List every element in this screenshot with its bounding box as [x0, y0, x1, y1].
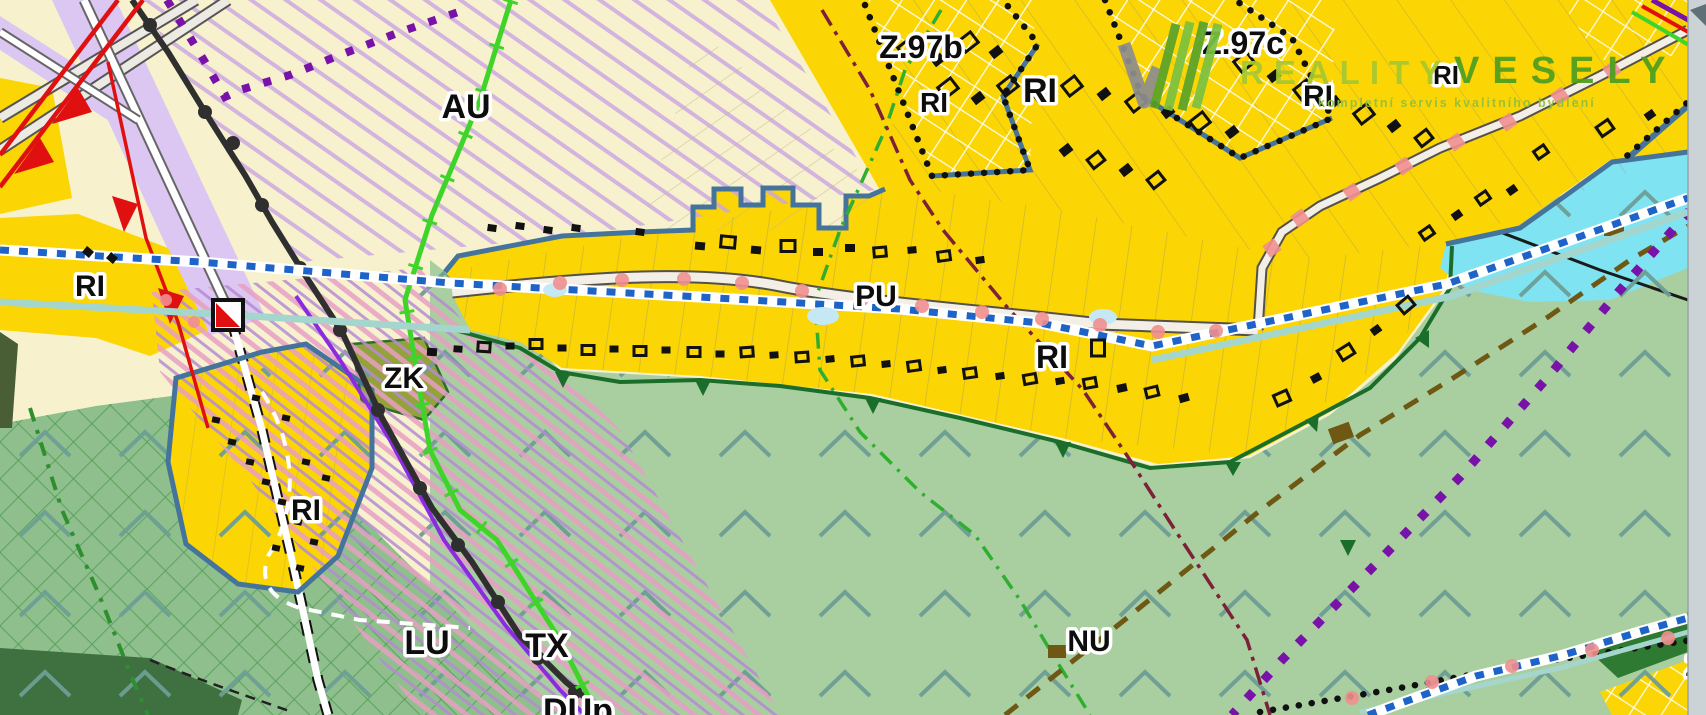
- zone-label: TX: [525, 627, 569, 665]
- zone-label: LU: [404, 624, 449, 662]
- road-dot: [615, 273, 629, 287]
- zone-label: RI: [1433, 60, 1459, 90]
- road-dot: [553, 276, 567, 290]
- road-dot: [735, 276, 749, 290]
- road-dot: [1093, 318, 1107, 332]
- building: [662, 347, 671, 354]
- road-dot: [975, 305, 989, 319]
- building: [610, 346, 619, 353]
- building: [635, 228, 645, 236]
- road-dot: [1661, 631, 1675, 645]
- road-dot: [1209, 324, 1223, 338]
- road-dot: [160, 294, 172, 306]
- road-dot: [188, 316, 200, 328]
- building: [571, 224, 581, 232]
- building: [937, 366, 947, 374]
- road-dot: [1505, 659, 1519, 673]
- zone-label: PU: [855, 280, 897, 313]
- building: [813, 248, 823, 256]
- zone-label: RI: [291, 494, 321, 527]
- building: [558, 345, 567, 352]
- building: [506, 343, 515, 350]
- building: [453, 345, 462, 353]
- building: [995, 372, 1005, 380]
- zone-label: RI: [75, 270, 105, 303]
- road-dot: [915, 299, 929, 313]
- zone-label: ZK: [384, 362, 424, 395]
- zone-label: AU: [441, 88, 490, 126]
- building: [751, 246, 762, 255]
- road-dot: [1585, 643, 1599, 657]
- zone-label: Z.97b: [879, 29, 963, 65]
- building: [487, 224, 497, 232]
- zone-label: NU: [1067, 625, 1110, 658]
- road-dot: [677, 272, 691, 286]
- building: [515, 222, 525, 230]
- building: [695, 242, 706, 251]
- zoning-map-canvas: RIAUZ.97bRIRIZ.97cRIRIPURIZKRILUTXDUpNUZ: [0, 0, 1706, 715]
- road-dot: [1151, 325, 1165, 339]
- road-dot: [1345, 691, 1359, 705]
- building: [769, 351, 778, 359]
- map-viewport: RIAUZ.97bRIRIZ.97cRIRIPURIZKRILUTXDUpNUZ…: [0, 0, 1706, 715]
- building: [881, 360, 891, 368]
- road-dot: [1035, 312, 1049, 326]
- zone-label: Z.97c: [1202, 25, 1284, 61]
- road-dot: [1425, 675, 1439, 689]
- building: [427, 348, 438, 357]
- building: [845, 244, 855, 252]
- zone-label: RI: [1036, 339, 1068, 375]
- road-dot: [795, 284, 809, 298]
- zone-label: RI: [1303, 80, 1333, 113]
- building: [716, 351, 725, 358]
- building: [975, 256, 985, 264]
- road-dot: [493, 282, 507, 296]
- building: [907, 246, 917, 254]
- control-point-symbol: [213, 300, 243, 330]
- zone-label: DUp: [543, 692, 613, 715]
- zone-label: RI: [1023, 72, 1057, 110]
- building: [543, 226, 553, 234]
- building: [825, 355, 835, 363]
- zone-label: RI: [920, 87, 948, 118]
- map-edge-strip: [1688, 0, 1706, 715]
